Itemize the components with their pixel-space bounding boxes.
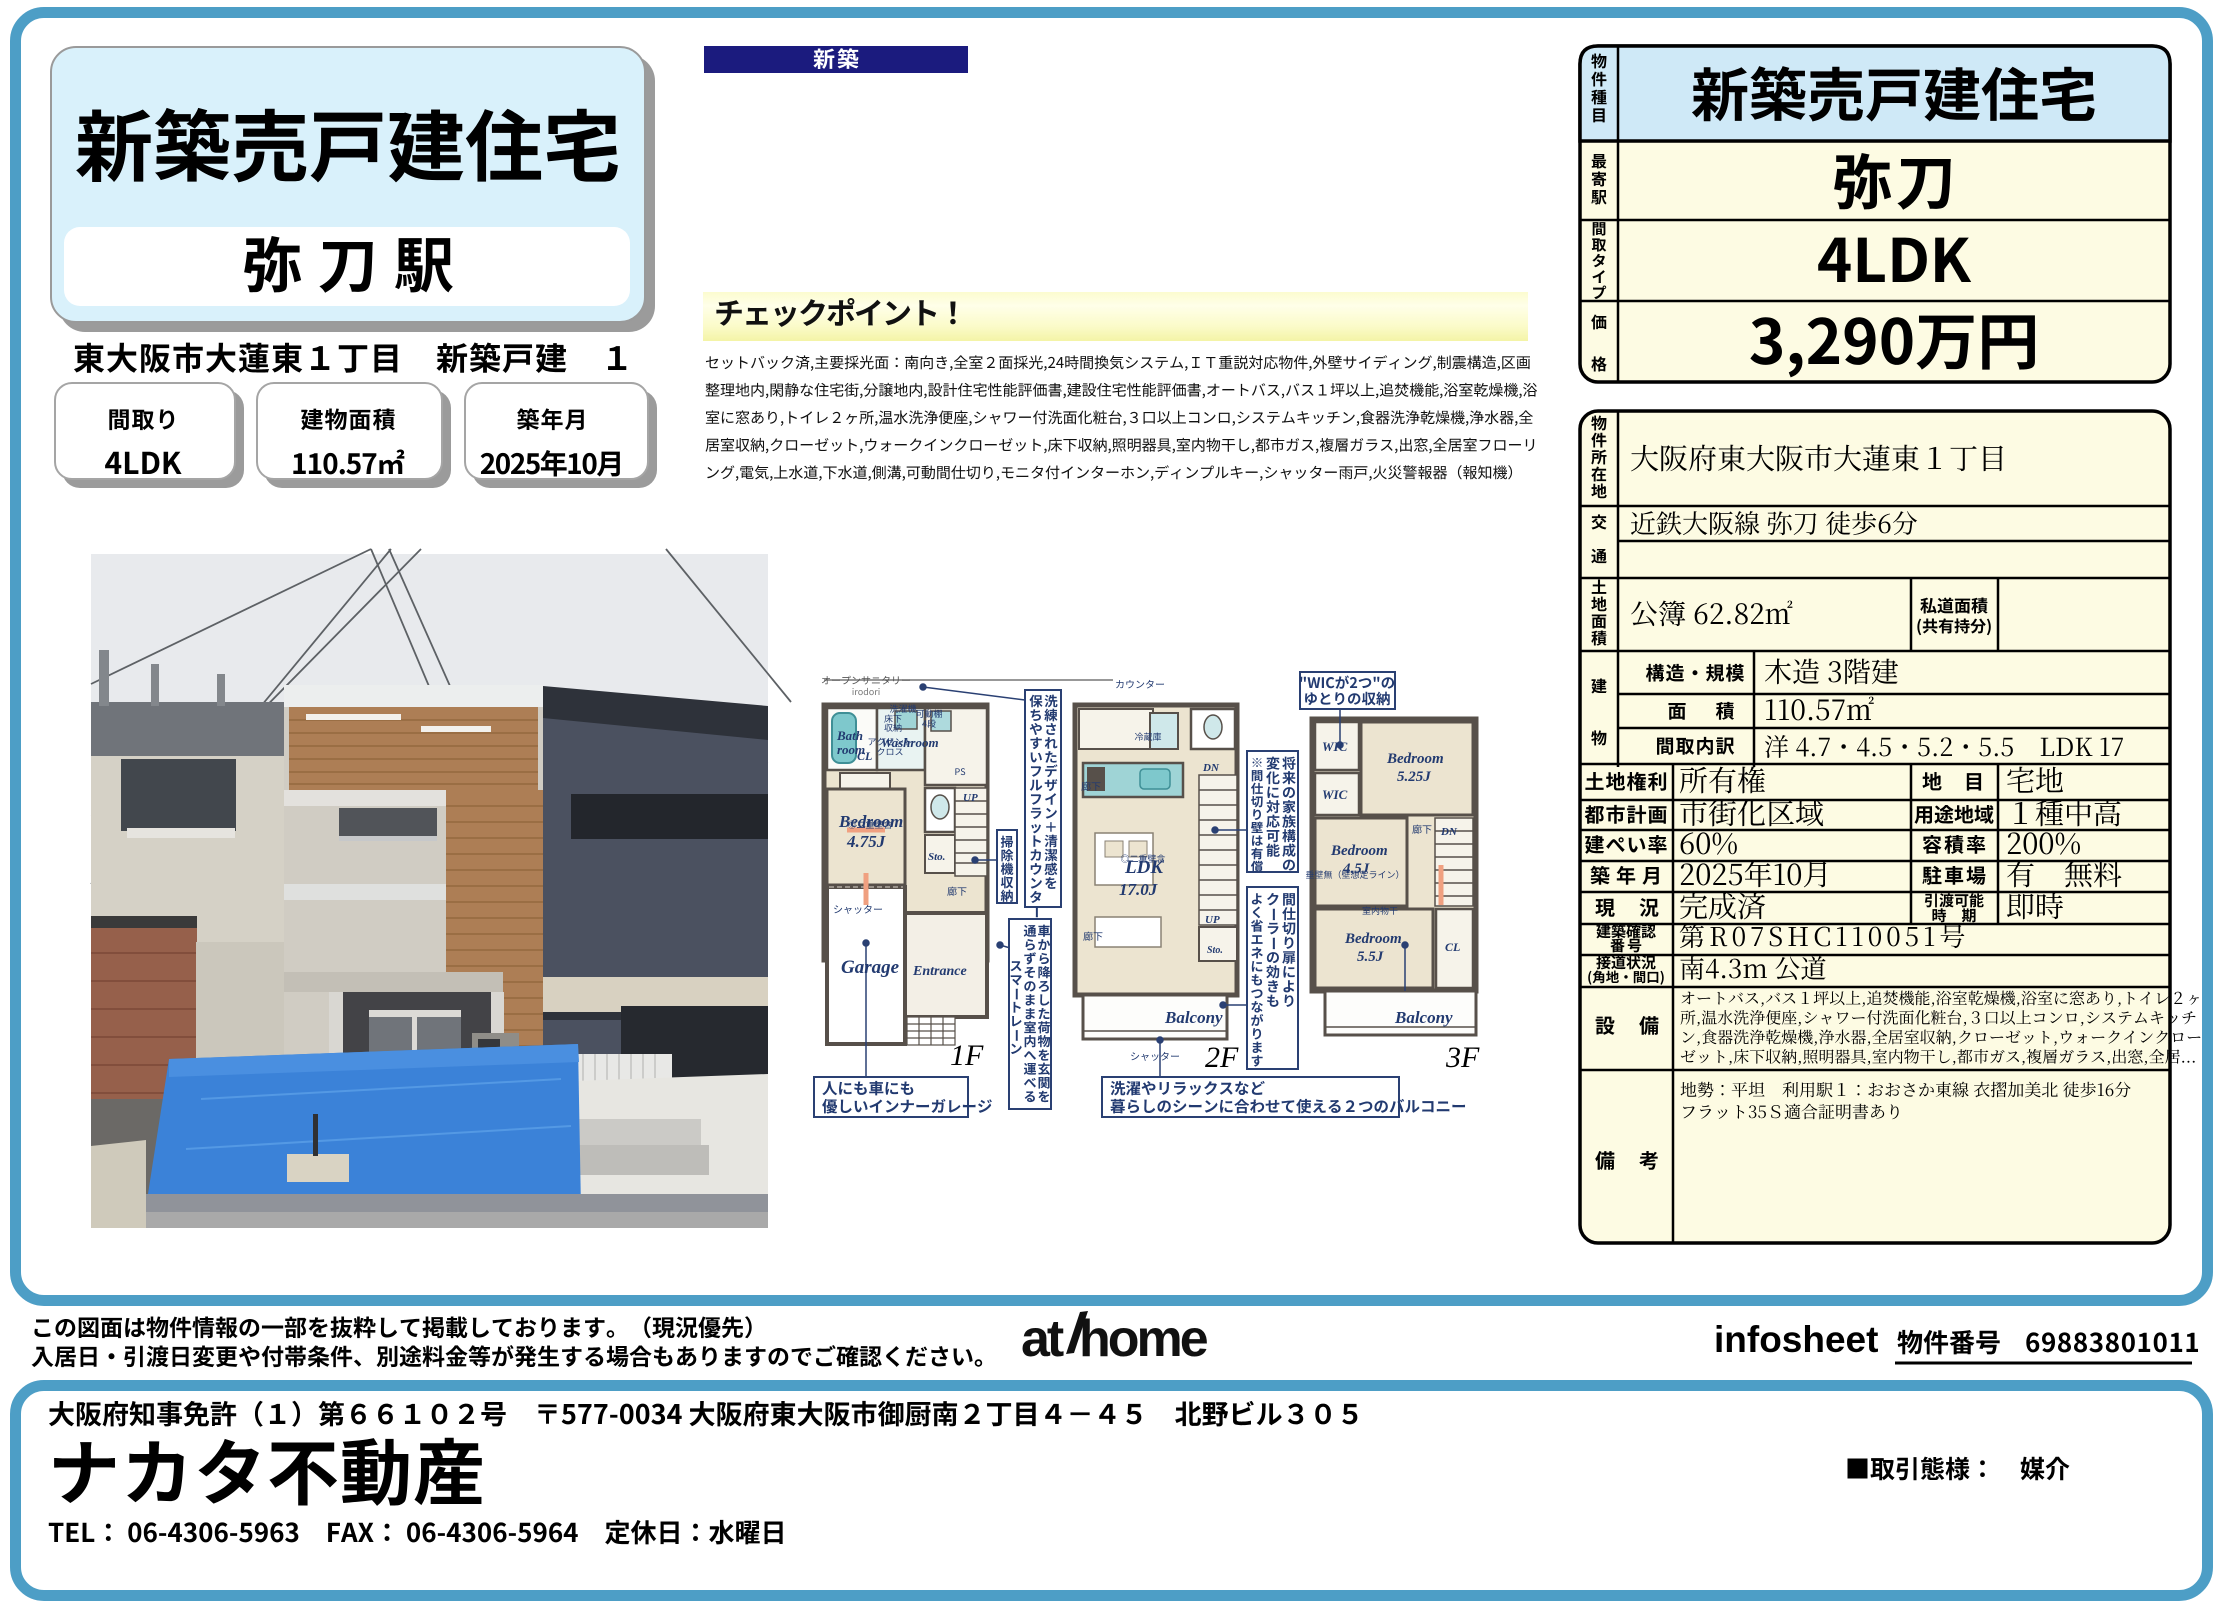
svg-text:DN: DN	[1202, 762, 1220, 774]
svg-text:Sto.: Sto.	[1207, 945, 1223, 956]
svg-text:DN: DN	[1440, 826, 1458, 838]
svg-text:Bath: Bath	[836, 728, 863, 743]
svg-text:Balcony: Balcony	[1394, 1008, 1453, 1027]
svg-text:Bedroom: Bedroom	[1344, 931, 1402, 947]
svg-text:CL: CL	[1445, 940, 1460, 954]
svg-text:17.0J: 17.0J	[1119, 880, 1158, 899]
svg-text:Entrance: Entrance	[912, 964, 967, 979]
svg-text:Bedroom: Bedroom	[1330, 843, 1388, 859]
svg-text:5.5J: 5.5J	[1357, 949, 1384, 965]
svg-text:1F: 1F	[950, 1039, 984, 1072]
svg-text:infosheet: infosheet	[1714, 1319, 1878, 1360]
svg-text:WIC: WIC	[1322, 739, 1348, 754]
svg-text:3F: 3F	[1445, 1041, 1480, 1074]
svg-text:CL: CL	[857, 749, 872, 763]
svg-text:Garage: Garage	[841, 957, 900, 978]
svg-text:WIC: WIC	[1322, 787, 1348, 802]
svg-text:Balcony: Balcony	[1164, 1008, 1223, 1027]
svg-text:UP: UP	[963, 792, 978, 804]
svg-text:4.75J: 4.75J	[846, 832, 886, 851]
svg-text:home: home	[1079, 1310, 1208, 1368]
svg-text:Bedroom: Bedroom	[1386, 751, 1444, 767]
svg-text:2F: 2F	[1205, 1041, 1239, 1074]
svg-text:4.5J: 4.5J	[1342, 861, 1370, 877]
svg-text:Washroom: Washroom	[881, 735, 939, 750]
svg-text:UP: UP	[1205, 914, 1220, 926]
svg-text:at: at	[1021, 1310, 1064, 1368]
svg-text:5.25J: 5.25J	[1397, 769, 1431, 785]
svg-text:Sto.: Sto.	[928, 851, 945, 863]
